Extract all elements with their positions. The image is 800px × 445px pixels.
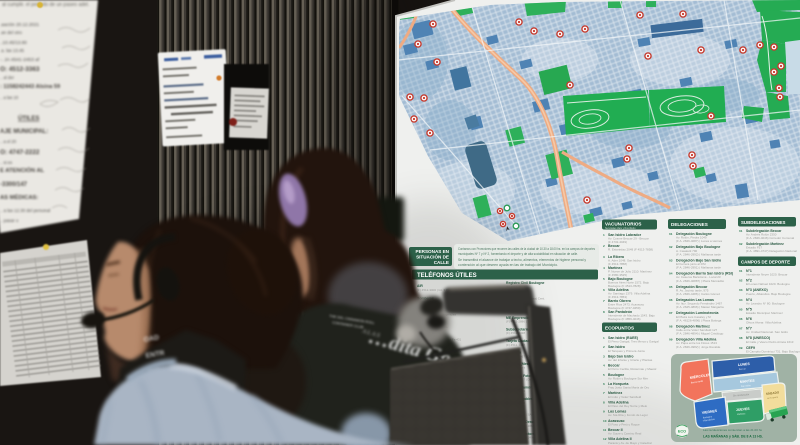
svg-text:03: 03: [739, 288, 743, 292]
svg-text:Boulogne (F 4859-4046): Boulogne (F 4859-4046): [608, 317, 641, 321]
svg-text:Intendente Neyer 1020. Beccar: Intendente Neyer 1020. Beccar: [746, 273, 788, 277]
svg-text:Olivos Alvear. Villa Adelina: Olivos Alvear. Villa Adelina: [746, 321, 782, 325]
svg-text:VACUNATORIOS: VACUNATORIOS: [605, 222, 642, 227]
svg-text:ECOPUNTOS: ECOPUNTOS: [605, 326, 634, 331]
svg-text:Av. Unidad Nacional. San Isidr: Av. Unidad Nacional. San Isidro: [746, 330, 788, 334]
svg-text:AJE MUNICIPAL:: AJE MUNICIPAL:: [0, 129, 48, 135]
svg-text:5: 5: [603, 277, 605, 281]
svg-text:SUBDELEGACIONES: SUBDELEGACIONES: [741, 220, 785, 225]
svg-text:.. al der: .. al der: [0, 75, 15, 80]
svg-text:El Lunes Nahuel 1020. Boulogne: El Lunes Nahuel 1020. Boulogne: [746, 282, 790, 286]
svg-text:-3300/147: -3300/147: [0, 182, 28, 188]
svg-text:-. JA 4541-2453 af: -. JA 4541-2453 af: [0, 57, 40, 63]
svg-text:12: 12: [603, 437, 607, 441]
svg-text:01: 01: [669, 232, 673, 236]
svg-text:Fray Justo Santa María de Oro: Fray Justo Santa María de Oro: [608, 386, 650, 390]
svg-text:Av. Sta Rita y Fondo de Legui: Av. Sta Rita y Fondo de Legui: [608, 413, 648, 417]
svg-text:06: 06: [669, 298, 673, 302]
svg-text:03: 03: [669, 258, 673, 262]
svg-text:04: 04: [739, 298, 743, 302]
svg-text:: 1158242443 Alsina 59: : 1158242443 Alsina 59: [0, 84, 60, 90]
svg-text:1: 1: [603, 233, 605, 237]
svg-text:LAS MAÑANAS y SÁB. DE 8 A 13 H: LAS MAÑANAS y SÁB. DE 8 A 13 HS.: [703, 434, 763, 439]
svg-text:09: 09: [739, 346, 743, 350]
svg-text:2: 2: [603, 345, 605, 349]
svg-text:07: 07: [739, 327, 743, 331]
svg-text:R. Estanislao 2049 (F 4513-785: R. Estanislao 2049 (F 4513-7858): [608, 248, 653, 252]
svg-text:Av. Sucre y Camino Real: Av. Sucre y Camino Real: [608, 432, 642, 436]
svg-text:ÚTILES: ÚTILES: [18, 115, 39, 122]
svg-text:(F A. 2846-4982) | Jorge Recal: (F A. 2846-4982) | Jorge Recalde: [676, 345, 721, 349]
svg-text:07: 07: [669, 311, 673, 315]
svg-text:3: 3: [603, 354, 605, 358]
svg-text:El Perro Garigal, Tres Mercs y: El Perro Garigal, Tres Mercs y Garigal: [608, 340, 659, 344]
svg-text:11: 11: [603, 428, 607, 432]
svg-text:municipales Nº 7 y Nº 2, fomen: municipales Nº 7 y Nº 2, fomentando el d…: [458, 252, 578, 256]
svg-text:4: 4: [603, 364, 605, 368]
svg-text:al cumplir. el período de un p: al cumplir. el período de un paseo adel.: [2, 2, 89, 8]
svg-text:El Tanques y Primera Junta: El Tanques y Primera Junta: [608, 349, 645, 353]
svg-text:Contamos con Promotores que re: Contamos con Promotores que recorren las…: [458, 247, 595, 251]
svg-text:(F A. 4891-4747) Delegación Na: (F A. 4891-4747) Delegación Nacional: [746, 249, 797, 253]
svg-text:(F A. 2846-4894) | Miguel Cris: (F A. 2846-4894) | Miguel Crisólogo: [676, 332, 724, 336]
svg-text:.. si es: .. si es: [0, 160, 12, 165]
svg-text:3: 3: [603, 255, 605, 259]
svg-text:SITUACIÓN DE: SITUACIÓN DE: [416, 253, 449, 260]
svg-text:.. a las 10: .. a las 10: [0, 95, 19, 100]
svg-text:10: 10: [603, 419, 607, 423]
svg-text:.aación 20.12.2021: .aación 20.12.2021: [0, 22, 40, 27]
svg-text:(F A. 2846-4087) | Lunes a vie: (F A. 2846-4087) | Lunes a viernes: [676, 239, 723, 243]
svg-text:.. a las 12.30 del personal: .. a las 12.30 del personal: [0, 208, 50, 213]
svg-text:El Calle y Vasco Pedro Arrieta: El Calle y Vasco Pedro Arrieta 1613: [746, 340, 794, 344]
svg-text:Av. Rolón y Boulogne Sur Mer: Av. Rolón y Boulogne Sur Mer: [608, 376, 648, 380]
svg-text:E ATENCIÓN AL: E ATENCIÓN AL: [0, 166, 45, 174]
svg-text:02: 02: [739, 242, 743, 246]
svg-text:6: 6: [603, 288, 605, 292]
svg-text:CALLE: CALLE: [434, 260, 449, 265]
svg-text:08: 08: [669, 324, 673, 328]
svg-text:08: 08: [739, 336, 743, 340]
svg-text:CAMPOS DE DEPORTE: CAMPOS DE DEPORTE: [741, 259, 790, 264]
svg-text:..10.45/13.80: ..10.45/13.80: [0, 40, 27, 45]
svg-text:8: 8: [603, 310, 605, 314]
svg-text:06: 06: [739, 317, 743, 321]
svg-text:El Foso y Perú y Roque: El Foso y Perú y Roque: [608, 422, 640, 426]
svg-text:TELÉFONOS ÚTILES: TELÉFONOS ÚTILES: [417, 271, 477, 279]
svg-text:Se transmitirá el alcance de t: Se transmitirá el alcance de trabajar a …: [458, 258, 586, 262]
svg-text:(F A. 2846-4046) Corredor Comu: (F A. 2846-4046) Corredor Comunal: [746, 236, 794, 240]
svg-text:8: 8: [603, 400, 605, 404]
svg-text:El Paso del Rey Norte y Melo: El Paso del Rey Norte y Melo: [608, 404, 648, 408]
svg-text:Las recolecciones comienzan a: Las recolecciones comienzan a las 21.00 …: [703, 428, 762, 432]
svg-text:.. a el 20: .. a el 20: [0, 139, 17, 144]
svg-text:05: 05: [669, 285, 673, 289]
svg-text:Av. Leandro N° 80. Boulogne: Av. Leandro N° 80. Boulogne: [746, 301, 785, 305]
svg-text:O: 4747-2222: O: 4747-2222: [0, 149, 40, 156]
svg-text:6: 6: [603, 382, 605, 386]
svg-text:05: 05: [739, 307, 743, 311]
svg-text:(F A. 46126-4896) | Plaza Bott: (F A. 46126-4896) | Plaza Bottega: [676, 318, 722, 322]
svg-text:(F A. 2625-4896) | Master Marg: (F A. 2625-4896) | Master Margarita: [676, 305, 724, 309]
svg-text:(F A. 2846-2991) | Mañanas tar: (F A. 2846-2991) | Mañanas tarde: [676, 266, 721, 270]
svg-text:02: 02: [739, 279, 743, 283]
svg-text:AS MÉDICAS:: AS MÉDICAS:: [0, 193, 38, 201]
svg-text:(F) 4512-3438: (F) 4512-3438: [506, 331, 525, 335]
svg-text:.an del otro: .an del otro: [0, 30, 23, 35]
svg-text:El Perro Cecilia, Rosternau y: El Perro Cecilia, Rosternau y Maestr.: [608, 367, 657, 371]
svg-text:ECO: ECO: [678, 430, 686, 434]
svg-text:Beccar: Beccar: [739, 367, 746, 371]
svg-text:Estadio Municipal. Martínez: Estadio Municipal. Martínez: [746, 311, 783, 315]
svg-text:El Campito Dominicci 731. Bajo: El Campito Dominicci 731. Bajo Boulogne: [746, 349, 800, 353]
svg-text:PERSONAS EN: PERSONAS EN: [416, 249, 450, 254]
svg-text:Av. del Infante y Uriarte y Pl: Av. del Infante y Uriarte y Plantas: [608, 358, 653, 362]
svg-text:4: 4: [603, 266, 605, 270]
svg-text:contención al que deseen ayuda: contención al que deseen ayuda en las de…: [458, 263, 558, 267]
svg-text:El Indio y Vélez Sarsfield: El Indio y Vélez Sarsfield: [608, 395, 642, 399]
svg-text:Paraná y Av. de Mayo y Catedra: Paraná y Av. de Mayo y Catedral: [608, 441, 652, 445]
svg-text:(F A. 2846-40887) | Plaza Merc: (F A. 2846-40887) | Plaza Mercadito: [676, 279, 724, 283]
svg-text:01: 01: [739, 269, 743, 273]
svg-text:.. pasar o: .. pasar o: [0, 218, 19, 223]
svg-text:Sucursales Vacu y Ronchietto: Sucursales Vacu y Ronchietto: [605, 227, 636, 230]
svg-text:1: 1: [603, 336, 605, 340]
svg-text:04: 04: [669, 272, 673, 276]
svg-text:Puerto, Albarellos. Bajo Boulo: Puerto, Albarellos. Bajo Boulogne: [746, 292, 791, 296]
svg-text:7: 7: [603, 299, 605, 303]
svg-text:.a. las 13.45: .a. las 13.45: [0, 48, 24, 53]
svg-text:02: 02: [669, 245, 673, 249]
svg-text:9: 9: [603, 410, 605, 414]
svg-text:2: 2: [603, 244, 605, 248]
svg-text:(F A. 2846-4486) | Carlos Góme: (F A. 2846-4486) | Carlos Gómez: [676, 292, 721, 296]
svg-text:DELEGACIONES: DELEGACIONES: [671, 222, 708, 227]
svg-text:09: 09: [669, 338, 673, 342]
svg-text:01: 01: [739, 229, 743, 233]
svg-text:O: 4512-3363: O: 4512-3363: [0, 66, 40, 73]
svg-text:5: 5: [603, 373, 605, 377]
svg-text:(F A. 2846-2992) | Mañanas tar: (F A. 2846-2992) | Mañanas tarde: [676, 252, 721, 256]
svg-text:7: 7: [603, 391, 605, 395]
